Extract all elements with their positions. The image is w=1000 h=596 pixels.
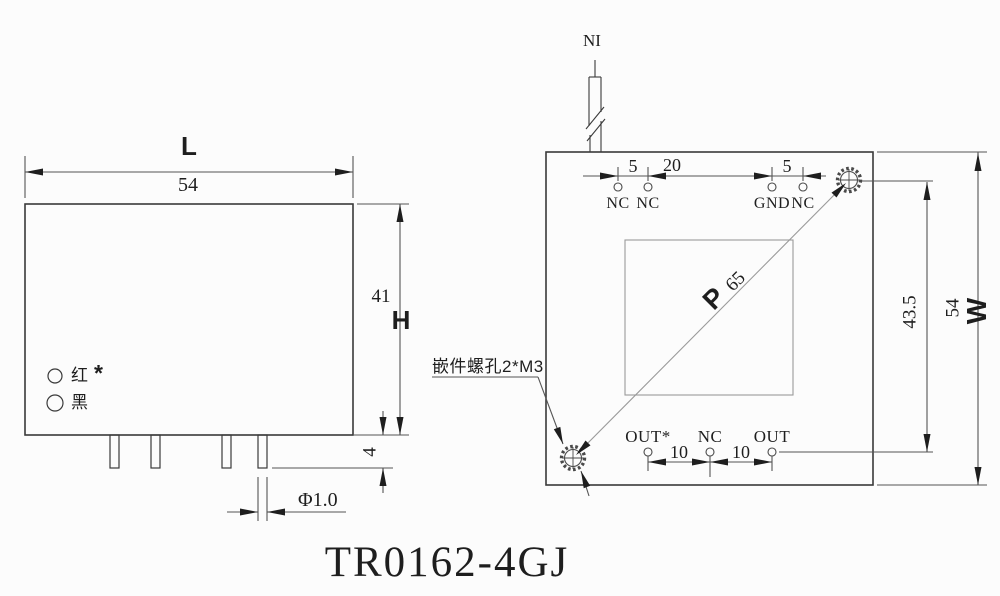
pitch-diagonal-line (576, 183, 846, 455)
top-spacing-2: 5 (783, 157, 792, 175)
dim-length-value: 54 (178, 175, 198, 195)
bottom-spacing-0: 10 (670, 443, 688, 461)
part-number-title: TR0162-4GJ (325, 538, 570, 587)
wire-red-polarity-mark: * (94, 362, 103, 385)
top-view-linework (546, 60, 873, 485)
dim-pin-diameter-value: Φ1.0 (298, 490, 338, 510)
bottom-pin-label-1: NC (698, 428, 723, 445)
top-pin-label-0: NC (606, 196, 629, 212)
dim-length-letter: L (181, 133, 197, 159)
dim-pin-length-value: 4 (361, 447, 380, 457)
drawing-canvas: L 54 41 H 4 Φ1.0 红 * 黑 NI 5 20 5 NC NC G… (0, 0, 1000, 596)
wire-red-label: 红 (71, 367, 88, 384)
screw-note-label: 嵌件螺孔2*M3 (432, 358, 544, 375)
top-pin-label-1: NC (636, 196, 659, 212)
drawing-linework (0, 0, 1000, 596)
dim-width-letter: W (963, 298, 991, 324)
top-pin-label-2: GND (754, 196, 790, 212)
dim-offset-value: 43.5 (901, 295, 920, 328)
front-view-linework (25, 204, 353, 468)
top-spacing-1: 20 (663, 156, 681, 174)
bottom-pin-label-0: OUT* (625, 428, 670, 445)
top-pin-label-3: NC (791, 196, 814, 212)
bottom-pin-label-2: OUT (754, 428, 790, 445)
top-spacing-0: 5 (629, 157, 638, 175)
front-view-arrowheads (25, 169, 404, 516)
input-pin-label: NI (583, 32, 601, 49)
dim-width-value: 54 (944, 299, 963, 318)
bottom-spacing-1: 10 (732, 443, 750, 461)
dim-height-letter: H (392, 307, 411, 333)
front-view-dimensions (25, 156, 409, 521)
dim-height-value: 41 (372, 287, 391, 306)
wire-black-label: 黑 (71, 394, 88, 411)
